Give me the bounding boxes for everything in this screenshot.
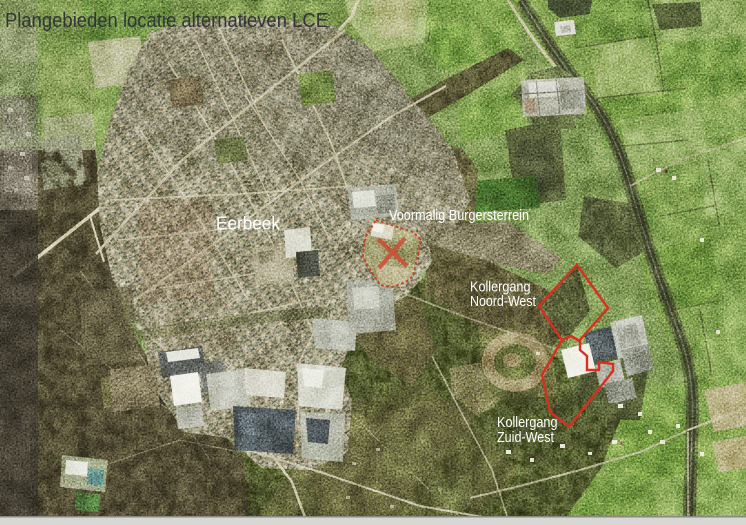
svg-text:Plangebieden locatie alternati: Plangebieden locatie alternatieven LCE bbox=[5, 10, 328, 32]
svg-text:Kollergang: Kollergang bbox=[497, 415, 558, 431]
svg-text:Noord-West: Noord-West bbox=[470, 294, 536, 310]
svg-text:Voormalig Burgersterrein: Voormalig Burgersterrein bbox=[389, 208, 529, 224]
svg-text:Zuid-West: Zuid-West bbox=[497, 430, 554, 446]
svg-text:Eerbeek: Eerbeek bbox=[216, 213, 281, 234]
